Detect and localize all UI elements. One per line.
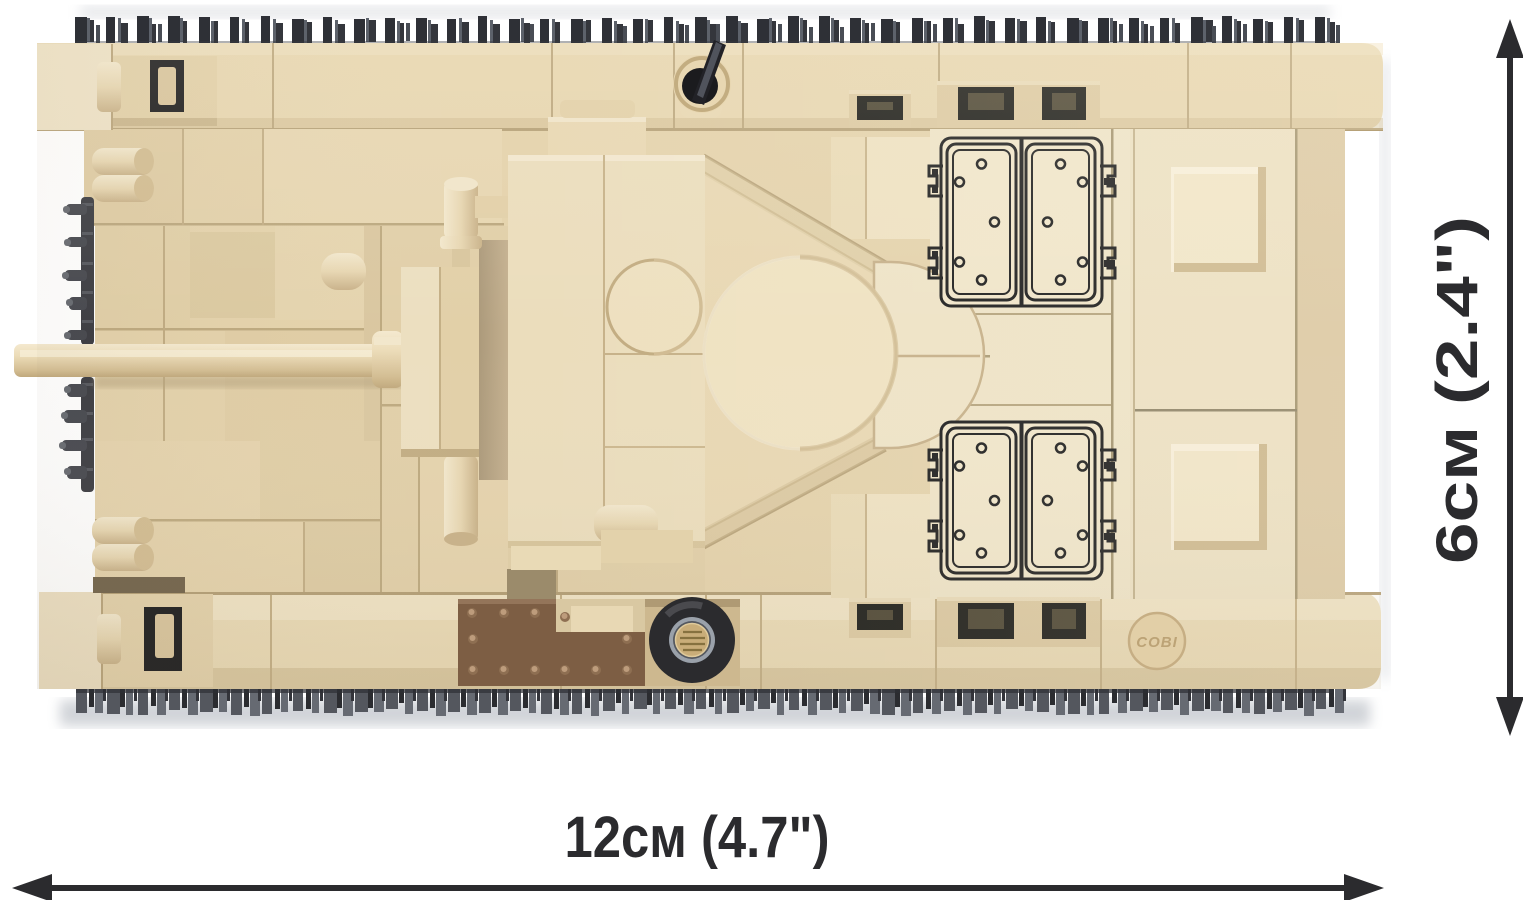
svg-text:12см (4.7"): 12см (4.7") xyxy=(565,805,830,870)
svg-text:COBI: COBI xyxy=(1136,634,1178,651)
svg-text:6см (2.4"): 6см (2.4") xyxy=(1425,216,1490,564)
